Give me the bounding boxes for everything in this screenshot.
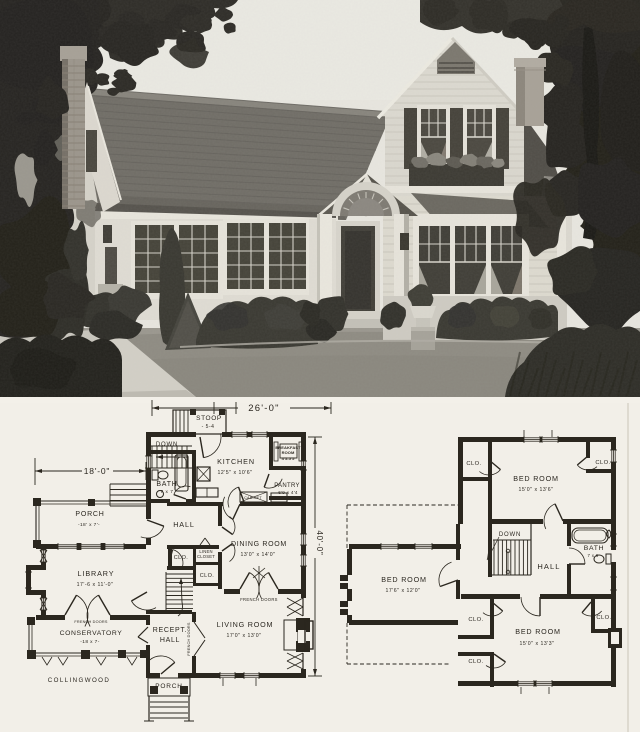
svg-text:17'-6 x 11'-0": 17'-6 x 11'-0" <box>77 582 114 588</box>
svg-text:CLO.: CLO. <box>595 460 610 466</box>
svg-text:CLO.: CLO. <box>466 461 481 467</box>
svg-text:FRENCH DOORS: FRENCH DOORS <box>74 620 107 624</box>
svg-text:HALL: HALL <box>173 520 195 529</box>
svg-text:HALL: HALL <box>537 562 560 571</box>
svg-text:BED ROOM: BED ROOM <box>513 474 559 483</box>
svg-text:4'5-5'5: 4'5-5'5 <box>282 456 296 461</box>
svg-text:FRENCH DOORS: FRENCH DOORS <box>187 622 191 655</box>
svg-text:KITCHEN: KITCHEN <box>217 457 255 466</box>
svg-text:40'-0": 40'-0" <box>315 530 324 555</box>
svg-text:COLLINGWOOD: COLLINGWOOD <box>48 677 111 684</box>
svg-text:BATH: BATH <box>156 481 177 488</box>
svg-text:- 5-4: - 5-4 <box>202 424 215 430</box>
svg-text:DOWN: DOWN <box>499 532 521 538</box>
svg-text:REF: REF <box>275 497 284 501</box>
svg-text:12'5" x 10'6": 12'5" x 10'6" <box>218 470 253 476</box>
svg-text:RECEPT.: RECEPT. <box>153 627 187 634</box>
svg-text:18'-0": 18'-0" <box>84 466 110 476</box>
svg-text:LIBRARY: LIBRARY <box>78 569 115 578</box>
svg-text:13'0" x 14'0": 13'0" x 14'0" <box>241 552 276 558</box>
svg-text:BATH: BATH <box>584 545 604 552</box>
svg-text:HALL: HALL <box>160 637 180 644</box>
svg-text:CLO.: CLO. <box>596 615 611 621</box>
svg-text:BED ROOM: BED ROOM <box>381 575 427 584</box>
svg-text:7 x 6: 7 x 6 <box>587 553 598 558</box>
svg-text:-18' x 7'-: -18' x 7'- <box>78 522 100 528</box>
svg-text:CLO.: CLO. <box>200 573 215 579</box>
svg-text:7 x 7: 7 x 7 <box>161 489 174 495</box>
svg-text:CLOSET: CLOSET <box>197 554 215 559</box>
svg-text:CLO.: CLO. <box>468 659 483 665</box>
svg-text:ROOM: ROOM <box>282 450 295 455</box>
svg-text:CONSERVATORY: CONSERVATORY <box>60 630 123 637</box>
svg-text:15'0" x 13'3": 15'0" x 13'3" <box>520 641 555 647</box>
svg-text:PORCH: PORCH <box>75 511 104 518</box>
svg-text:PANTRY: PANTRY <box>274 483 300 489</box>
svg-text:LIVING ROOM: LIVING ROOM <box>217 620 274 629</box>
svg-text:CLO.: CLO. <box>174 555 189 561</box>
svg-text:STOOP: STOOP <box>196 415 222 422</box>
svg-text:PORCH: PORCH <box>155 683 182 690</box>
svg-text:-18 x 7-: -18 x 7- <box>80 639 99 645</box>
svg-text:26'-0": 26'-0" <box>248 403 279 414</box>
svg-text:CLO.: CLO. <box>468 617 483 623</box>
svg-text:DINING ROOM: DINING ROOM <box>231 541 287 548</box>
svg-text:CABINET: CABINET <box>244 496 262 500</box>
svg-text:17'6" x 12'0": 17'6" x 12'0" <box>386 588 421 594</box>
svg-text:BED ROOM: BED ROOM <box>515 627 561 636</box>
svg-text:15'0" x 13'6": 15'0" x 13'6" <box>519 487 554 493</box>
svg-text:17'0" x 13'0": 17'0" x 13'0" <box>227 633 262 639</box>
svg-text:FRENCH DOORS: FRENCH DOORS <box>240 597 278 602</box>
